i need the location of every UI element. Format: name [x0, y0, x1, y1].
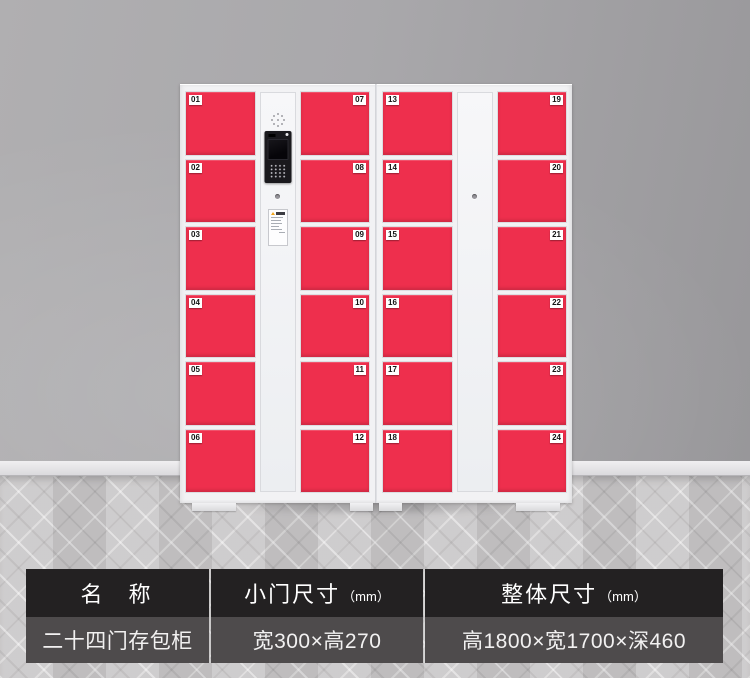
locker-door-17: 17 — [383, 362, 452, 425]
door-number-plate: 01 — [189, 95, 202, 105]
spec-header-label: 整体尺寸 — [501, 577, 597, 609]
locker-door-23: 23 — [498, 362, 567, 425]
locker-cabinet-right: 131415161718 192021222324 — [377, 84, 572, 503]
door-number-plate: 03 — [189, 230, 202, 240]
locker-body: 010203040506 — [180, 84, 572, 503]
door-number-plate: 14 — [386, 163, 399, 173]
locker-foot — [379, 503, 402, 511]
door-number-plate: 23 — [550, 365, 563, 375]
locker-door-22: 22 — [498, 295, 567, 358]
spec-header-overall-size: 整体尺寸 （mm） — [425, 569, 723, 617]
spec-table: 名 称 二十四门存包柜 小门尺寸 （mm） 宽300×高270 整体尺寸 （mm… — [26, 569, 723, 663]
locker-door-04: 04 — [186, 295, 255, 358]
storage-locker: 010203040506 — [180, 84, 572, 511]
door-number-plate: 06 — [189, 433, 202, 443]
door-number-plate: 17 — [386, 365, 399, 375]
locker-door-18: 18 — [383, 430, 452, 493]
spec-value-overall-size: 高1800×宽1700×深460 — [425, 617, 723, 663]
spec-header-label: 小门尺寸 — [244, 577, 340, 609]
door-number-plate: 24 — [550, 433, 563, 443]
terminal-screen — [267, 139, 288, 160]
locker-door-15: 15 — [383, 227, 452, 290]
locker-door-13: 13 — [383, 92, 452, 155]
door-number-plate: 10 — [353, 298, 366, 308]
door-number-plate: 04 — [189, 298, 202, 308]
locker-door-07: 07 — [301, 92, 370, 155]
door-number-plate: 12 — [353, 433, 366, 443]
spec-header-unit: （mm） — [342, 582, 390, 605]
locker-door-08: 08 — [301, 160, 370, 223]
locker-door-09: 09 — [301, 227, 370, 290]
locker-foot — [192, 503, 236, 511]
locker-door-01: 01 — [186, 92, 255, 155]
spec-header-label: 名 称 — [80, 577, 152, 609]
spec-header-unit: （mm） — [599, 582, 647, 605]
speaker-icon — [269, 111, 287, 129]
spec-value-name: 二十四门存包柜 — [26, 617, 209, 663]
locker-door-05: 05 — [186, 362, 255, 425]
locker-door-19: 19 — [498, 92, 567, 155]
camera-dot-icon — [285, 133, 288, 136]
sticker-title-bar — [276, 212, 285, 215]
locker-door-21: 21 — [498, 227, 567, 290]
door-number-plate: 15 — [386, 230, 399, 240]
door-number-plate: 21 — [550, 230, 563, 240]
terminal-top — [264, 131, 291, 139]
locker-door-03: 03 — [186, 227, 255, 290]
product-scene: 010203040506 — [0, 0, 750, 678]
spec-header-name: 名 称 — [26, 569, 209, 617]
door-column-2: 070809101112 — [301, 92, 370, 492]
locker-door-10: 10 — [301, 295, 370, 358]
door-column-3: 131415161718 — [383, 92, 452, 492]
control-panel — [260, 92, 296, 492]
locker-door-14: 14 — [383, 160, 452, 223]
spec-header-door-size: 小门尺寸 （mm） — [211, 569, 423, 617]
scanner-slot-icon — [268, 134, 275, 137]
door-number-plate: 11 — [354, 365, 366, 375]
door-number-plate: 16 — [386, 298, 399, 308]
door-number-plate: 18 — [386, 433, 399, 443]
door-number-plate: 09 — [353, 230, 366, 240]
locker-door-11: 11 — [301, 362, 370, 425]
locker-foot — [516, 503, 560, 511]
door-number-plate: 13 — [386, 95, 399, 105]
blank-panel — [457, 92, 493, 492]
warning-triangle-icon — [271, 212, 275, 215]
locker-door-06: 06 — [186, 430, 255, 493]
keypad-terminal — [264, 131, 291, 183]
door-column-1: 010203040506 — [186, 92, 255, 492]
sticker-header — [271, 212, 285, 215]
locker-cabinet-left: 010203040506 — [180, 84, 375, 503]
door-number-plate: 02 — [189, 163, 202, 173]
spec-column-door-size: 小门尺寸 （mm） 宽300×高270 — [209, 569, 423, 663]
panel-lock-icon — [275, 194, 280, 199]
locker-door-02: 02 — [186, 160, 255, 223]
door-number-plate: 22 — [550, 298, 563, 308]
door-number-plate: 20 — [550, 163, 563, 173]
spec-column-name: 名 称 二十四门存包柜 — [26, 569, 209, 663]
instruction-sticker — [268, 209, 288, 246]
door-number-plate: 05 — [189, 365, 202, 375]
terminal-keypad — [269, 164, 286, 178]
locker-door-12: 12 — [301, 430, 370, 493]
door-number-plate: 19 — [550, 95, 563, 105]
door-number-plate: 07 — [353, 95, 366, 105]
spec-value-door-size: 宽300×高270 — [211, 617, 423, 663]
panel-lock-icon — [472, 194, 477, 199]
door-column-4: 192021222324 — [498, 92, 567, 492]
locker-foot — [350, 503, 373, 511]
door-number-plate: 08 — [353, 163, 366, 173]
locker-door-20: 20 — [498, 160, 567, 223]
locker-door-16: 16 — [383, 295, 452, 358]
locker-door-24: 24 — [498, 430, 567, 493]
spec-column-overall-size: 整体尺寸 （mm） 高1800×宽1700×深460 — [423, 569, 723, 663]
